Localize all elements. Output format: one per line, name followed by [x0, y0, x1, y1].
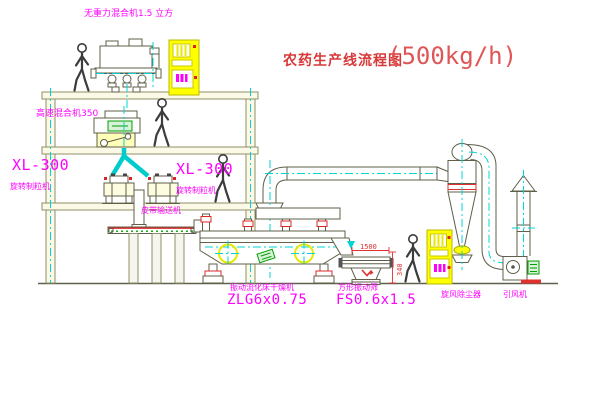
dim-screen-length: 1500	[360, 243, 377, 251]
label-fan: 引风机	[503, 291, 527, 299]
cabinet-text-mark	[176, 74, 179, 82]
control-cabinet-right	[427, 230, 452, 284]
induced-draft-fan	[503, 257, 541, 284]
worker-figure-roof	[75, 44, 89, 91]
label-high-speed-mixer: 高速混合机350	[36, 110, 98, 119]
label-screen-model: FS0.6x1.5	[336, 293, 416, 307]
cabinet-text-mark	[434, 264, 437, 272]
belt-conveyor	[108, 220, 206, 283]
label-granulator-right-name: 旋转制粒机	[176, 187, 216, 195]
label-dryer-model: ZLG6x0.75	[227, 293, 307, 307]
label-screen-name: 方形振动筛	[338, 284, 378, 292]
control-cabinet-top	[169, 40, 199, 95]
label-dryer-name: 振动流化床干燥机	[230, 284, 294, 292]
gravity-free-mixer	[91, 39, 161, 112]
high-speed-mixer	[94, 106, 140, 150]
granulator-right	[146, 174, 180, 204]
process-flow-diagram: 农药生产线流程图 (500kg/h) 无重力混合机1.5 立方 高速混合机350…	[0, 0, 600, 403]
fan-base	[521, 280, 541, 284]
label-granulator-right-model: XL-300	[176, 162, 233, 177]
dim-screen-height: 340	[396, 263, 404, 276]
fluid-bed-dryer	[200, 208, 345, 283]
diagram-capacity: (500kg/h)	[387, 42, 517, 70]
diagram-title: 农药生产线流程图	[283, 50, 403, 70]
label-granulator-left-name: 旋转制粒机	[10, 183, 50, 191]
label-granulator-left-model: XL-300	[12, 158, 69, 173]
label-cyclone: 旋风除尘器	[441, 291, 481, 299]
worker-figure-ground	[406, 235, 420, 282]
worker-figure-floor2	[155, 99, 169, 146]
label-belt-conveyor: 皮带输送机	[141, 207, 181, 215]
granulator-left	[102, 174, 136, 204]
label-gravity-mixer: 无重力混合机1.5 立方	[84, 10, 173, 19]
